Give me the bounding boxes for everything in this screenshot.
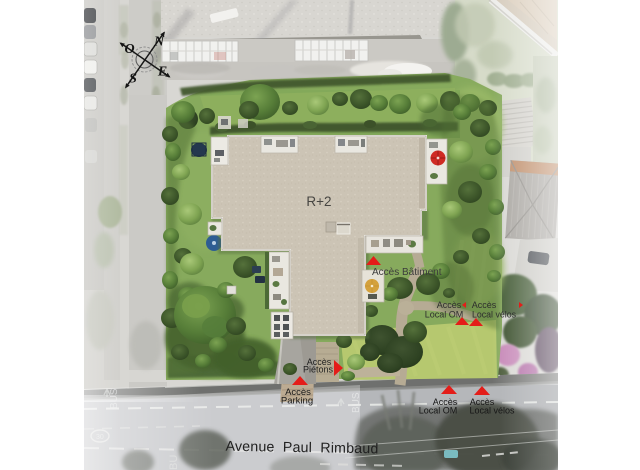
svg-text:O: O bbox=[124, 42, 134, 57]
svg-text:BUS: BUS bbox=[351, 392, 362, 413]
svg-text:Piétons: Piétons bbox=[303, 365, 334, 375]
svg-text:N: N bbox=[153, 35, 165, 50]
svg-text:Accès Bâtiment: Accès Bâtiment bbox=[372, 267, 442, 278]
svg-text:Local OM: Local OM bbox=[425, 310, 464, 320]
svg-text:Accès: Accès bbox=[472, 300, 497, 310]
svg-text:Local vélos: Local vélos bbox=[472, 310, 517, 320]
svg-text:Local OM: Local OM bbox=[419, 406, 458, 416]
svg-text:R+2: R+2 bbox=[306, 194, 331, 209]
svg-text:Accès: Accès bbox=[437, 300, 462, 310]
svg-text:Local vélos: Local vélos bbox=[469, 406, 515, 416]
svg-text:E: E bbox=[157, 65, 167, 80]
svg-text:Parking: Parking bbox=[281, 396, 313, 407]
svg-text:Avenue Paul Rimbaud: Avenue Paul Rimbaud bbox=[225, 439, 378, 458]
svg-text:S: S bbox=[129, 72, 137, 87]
